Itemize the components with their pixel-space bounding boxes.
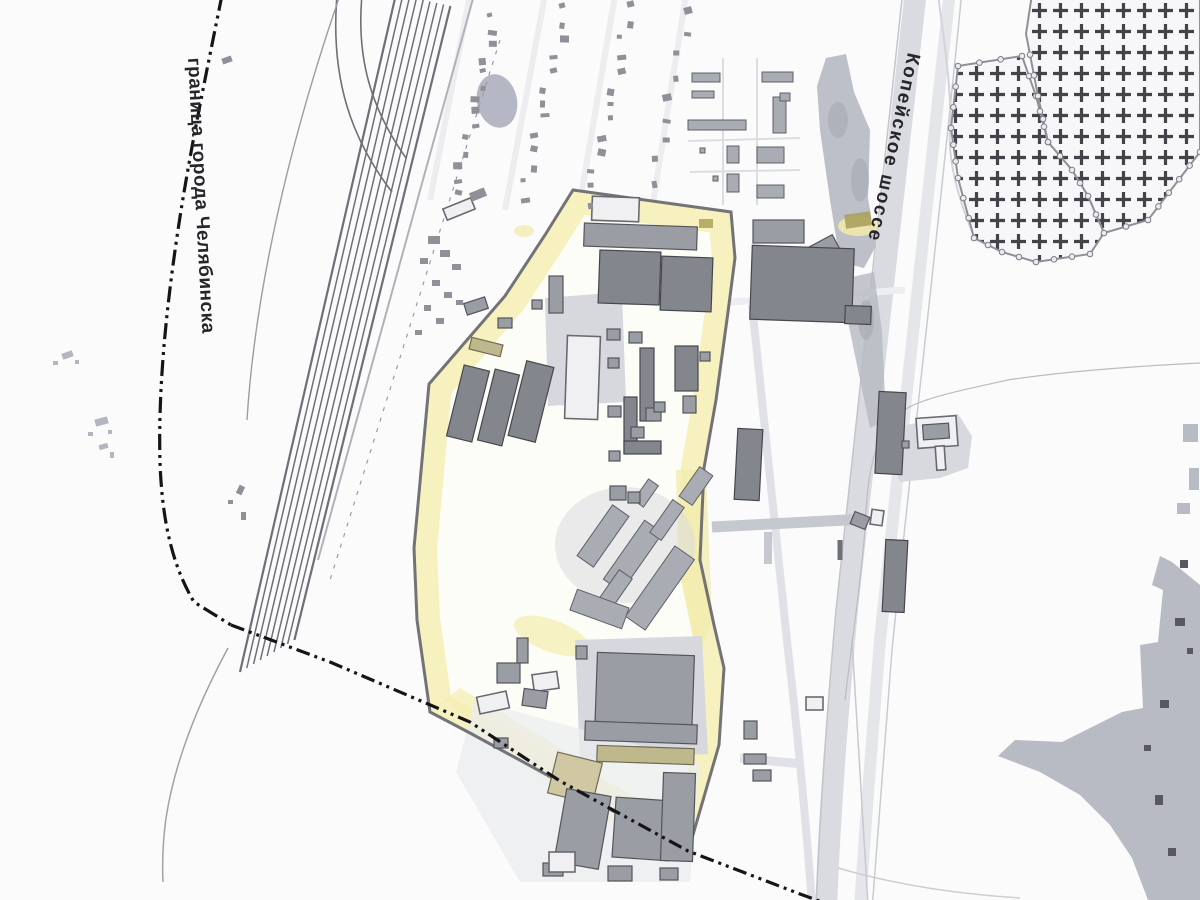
tiny-building	[520, 178, 525, 182]
building	[875, 391, 906, 474]
building	[597, 745, 694, 764]
building	[585, 721, 698, 744]
building	[935, 446, 946, 471]
building	[631, 427, 644, 438]
tiny-building	[663, 137, 670, 142]
building	[53, 361, 58, 365]
building	[806, 697, 823, 710]
building	[532, 300, 542, 309]
gray-patch	[1183, 424, 1198, 442]
building	[753, 220, 804, 243]
fence-post	[998, 57, 1004, 63]
fence-post	[1093, 212, 1099, 218]
tiny-building	[652, 156, 658, 162]
building	[780, 93, 790, 101]
fence-post	[951, 105, 957, 111]
fence-post	[1069, 254, 1075, 260]
tiny-building	[673, 76, 679, 82]
building	[517, 638, 528, 663]
fence-post	[955, 63, 961, 69]
fence-post	[985, 242, 991, 248]
small-building	[1155, 795, 1163, 805]
fence-post	[999, 249, 1005, 255]
building	[498, 318, 512, 328]
building	[753, 770, 771, 781]
building	[744, 754, 766, 764]
building	[549, 276, 563, 313]
gray-patch	[1189, 468, 1199, 490]
tiny-building	[463, 152, 469, 158]
building	[424, 305, 431, 311]
building	[608, 358, 619, 368]
fence-post	[955, 175, 961, 181]
building	[444, 292, 452, 298]
tiny-building	[608, 115, 613, 120]
building	[882, 539, 908, 612]
tiny-building	[607, 88, 615, 96]
fence-post	[948, 125, 954, 131]
building	[584, 223, 698, 250]
building	[549, 852, 575, 872]
yellow-highlight	[514, 225, 534, 237]
building	[241, 512, 246, 520]
tiny-building	[588, 203, 594, 210]
building	[757, 185, 784, 198]
building	[607, 329, 620, 340]
tiny-building	[559, 22, 565, 29]
map-canvas: граница города Челябинска Копейское шосс…	[0, 0, 1200, 900]
tiny-building	[453, 162, 462, 169]
fence-post	[1027, 52, 1033, 58]
building	[727, 146, 739, 163]
building	[923, 423, 950, 440]
fence-post	[1123, 224, 1129, 230]
building	[773, 97, 786, 133]
building	[744, 721, 757, 739]
building	[688, 120, 746, 130]
fence-post	[1045, 139, 1051, 145]
building	[522, 688, 548, 708]
fence-post	[953, 159, 959, 165]
building	[497, 663, 520, 683]
scanned-map-page: граница города Челябинска Копейское шосс…	[0, 0, 1200, 900]
building	[415, 330, 422, 335]
building	[660, 256, 713, 312]
building	[629, 332, 642, 343]
small-building	[1144, 745, 1151, 751]
fence-post	[1156, 204, 1162, 210]
building	[440, 250, 450, 257]
fence-post	[1041, 124, 1047, 130]
tiny-building	[540, 113, 549, 118]
building	[675, 346, 698, 391]
building	[608, 406, 621, 417]
building	[88, 432, 93, 436]
small-building	[1168, 848, 1176, 856]
building	[628, 492, 640, 503]
building	[565, 335, 601, 419]
tiny-building	[587, 169, 594, 174]
fence-post	[1035, 93, 1041, 99]
building	[228, 500, 233, 504]
fence-post	[1101, 230, 1107, 236]
building	[845, 306, 872, 325]
fence-post	[1077, 180, 1083, 186]
building	[692, 73, 720, 82]
tiny-building	[489, 41, 497, 47]
tiny-building	[549, 55, 557, 60]
gray-patch	[1177, 503, 1190, 514]
building	[750, 245, 855, 323]
fence-post	[1033, 259, 1039, 265]
building	[428, 236, 440, 244]
building	[576, 646, 587, 659]
vegetation-blob	[851, 158, 869, 202]
fence-post	[971, 235, 977, 241]
building	[110, 452, 114, 458]
building	[610, 486, 626, 500]
building	[456, 300, 463, 305]
fence-post	[1145, 217, 1151, 223]
olive-patch	[699, 219, 713, 228]
fence-post	[1057, 153, 1063, 159]
fence-post	[953, 84, 959, 90]
building	[700, 148, 705, 153]
building	[624, 441, 661, 454]
building	[683, 396, 696, 413]
building	[734, 428, 763, 500]
building	[608, 866, 632, 881]
fence-post	[951, 142, 957, 148]
fence-post	[1051, 257, 1057, 263]
fence-post	[1037, 109, 1043, 115]
fence-post	[977, 60, 983, 66]
building	[436, 318, 444, 324]
tiny-building	[478, 58, 486, 66]
fence-post	[961, 195, 967, 201]
building	[592, 196, 640, 222]
building	[532, 671, 559, 691]
building	[654, 402, 665, 412]
tiny-building	[607, 102, 613, 106]
building	[692, 91, 714, 98]
fence-post	[1087, 251, 1093, 257]
tiny-building	[471, 106, 479, 114]
building	[420, 258, 428, 264]
fence-post	[1031, 73, 1037, 79]
building	[762, 72, 793, 82]
small-building	[1180, 560, 1188, 568]
building	[598, 250, 661, 305]
building	[75, 360, 79, 364]
building	[713, 176, 718, 181]
tiny-building	[540, 100, 545, 107]
tiny-building	[617, 35, 622, 39]
tiny-building	[531, 165, 538, 172]
vegetation-blob	[828, 102, 848, 138]
fence-post	[1019, 53, 1025, 59]
small-building	[1187, 648, 1193, 654]
tiny-building	[627, 21, 634, 29]
tiny-building	[539, 87, 546, 94]
building	[452, 264, 461, 270]
building	[432, 280, 440, 286]
tiny-building	[560, 35, 569, 42]
building	[108, 430, 112, 434]
building	[660, 772, 695, 861]
fence-post	[1166, 190, 1172, 196]
building	[660, 868, 678, 880]
small-building	[1160, 700, 1169, 708]
fence-post	[1040, 116, 1046, 122]
tiny-building	[470, 96, 479, 102]
building	[700, 352, 710, 361]
building	[609, 451, 620, 461]
building	[727, 174, 739, 192]
tiny-building	[617, 55, 626, 61]
tiny-building	[587, 183, 593, 188]
small-building	[1175, 618, 1185, 626]
fence-post	[1176, 176, 1182, 182]
fence-post	[1187, 163, 1193, 169]
building	[902, 441, 909, 448]
fence-post	[1016, 254, 1022, 260]
tiny-building	[673, 50, 679, 55]
tiny-building	[480, 86, 486, 92]
building	[757, 147, 784, 163]
fence-post	[1085, 193, 1091, 199]
building	[870, 509, 884, 526]
fence-post	[1069, 167, 1075, 173]
fence-post	[966, 215, 972, 221]
